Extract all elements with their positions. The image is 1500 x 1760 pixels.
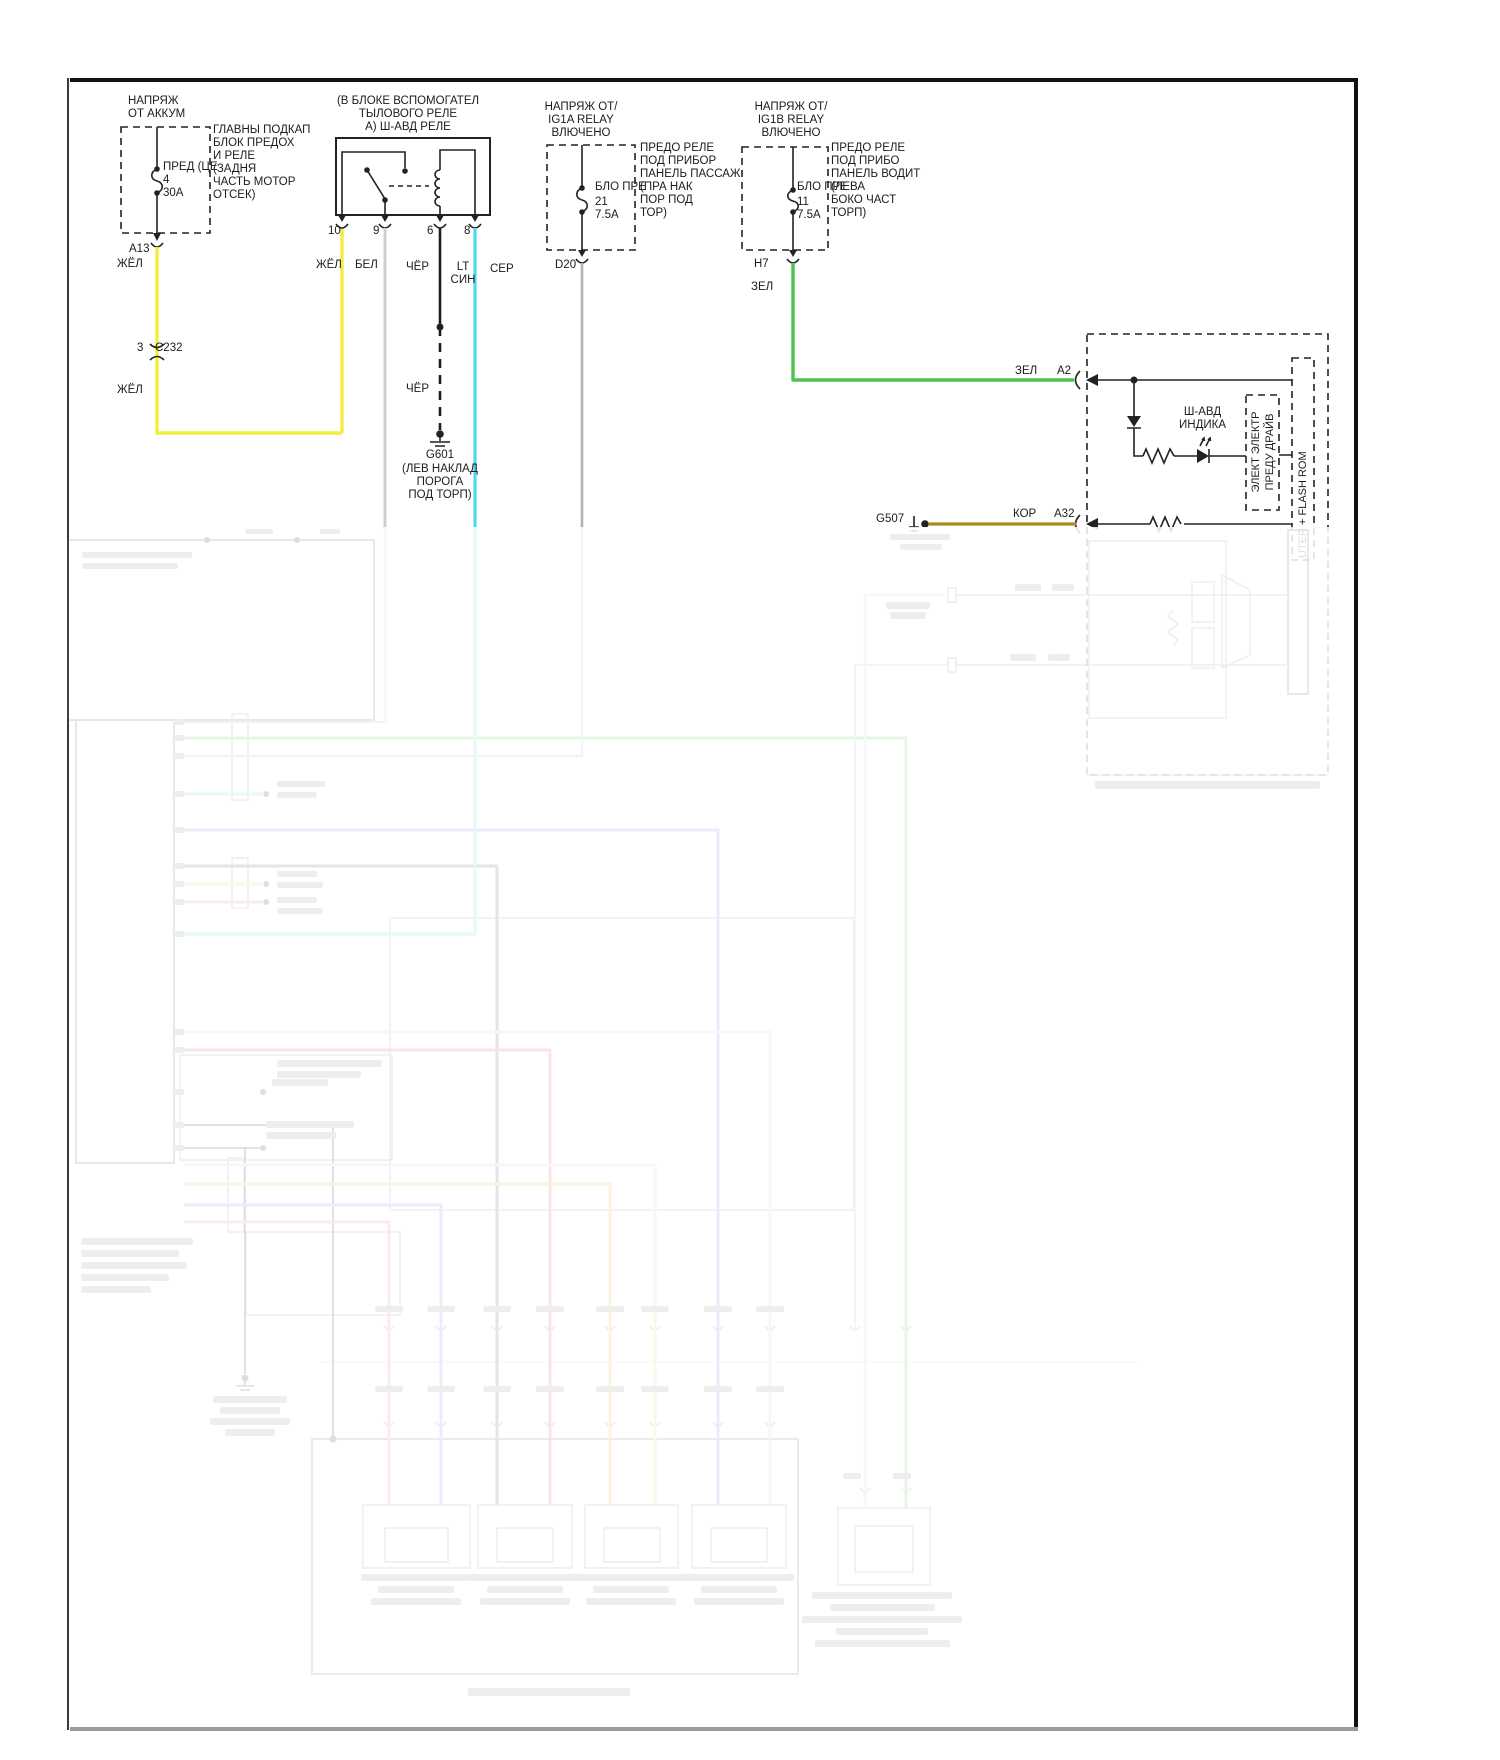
battery-box-label: ГЛАВНЫ ПОДКАП БЛОК ПРЕДОХ И РЕЛЕ (ЗАДНЯ … [213,124,310,202]
relay-pin-9: 9 [373,225,379,238]
bottom-modules [363,1505,786,1568]
arrow-down-icon [153,233,161,241]
driver-box-label: ЭЛЕКТ ЭЛЕКТР ПРЕДУ ДРАЙВ [1249,396,1277,508]
diode-icon [1127,380,1143,456]
ground-g507: G507 [876,513,904,526]
relay-pin-8: 8 [464,225,470,238]
ig1a-fuse-name: БЛО ПРЕ [595,181,646,194]
pin-a13: A13 [129,243,149,256]
wire-label-bel: БЕЛ [355,259,378,272]
resistor-icon-2 [1150,517,1181,531]
ig1a-fuse-box [547,145,635,263]
fuse-icon [152,169,163,193]
relay-pin-6: 6 [427,225,433,238]
wire-label-zel-1: ЗЕЛ [751,281,773,294]
wire-label-zel-2: ЗЕЛ [1015,365,1037,378]
wire-gray-right [855,665,948,1330]
wire-label-ser: СЕР [490,263,514,276]
wire-ltblue-pin8 [184,228,475,934]
pin-a32: A32 [1054,508,1074,521]
resistor-icon [1143,449,1174,463]
wire-lightgray-2 [184,1165,655,1302]
relay-coil-icon [435,150,475,215]
ig1a-fuse-amps: 21 7.5A [595,196,619,222]
wire-label-kor: КОР [1013,508,1036,521]
faded-structure [68,530,1328,1674]
battery-header: НАПРЯЖ ОТ АККУМ [128,95,185,121]
connector-arc-a13 [151,243,163,247]
connector-arc-d20 [576,259,588,263]
pin-h7: H7 [754,258,769,271]
relay-pin-10: 10 [328,225,341,238]
splice-pin-3: 3 [137,342,143,355]
connector-arc-a2 [1076,371,1081,389]
wire-red-main [184,1050,550,1505]
module-pins [174,719,184,1151]
wire-label-cher: ЧЁР [406,261,429,274]
led-indicator-icon [1197,438,1211,463]
connector-arc-a32 [1076,515,1081,533]
fuse-icon [577,188,588,212]
wire-label-zhel: ЖЁЛ [316,259,342,272]
ig1b-header: НАПРЯЖ ОТ/ IG1B RELAY ВЛЮЧЕНО [745,101,837,140]
ground-g601: G601 [410,449,470,462]
wire-gray-d20 [184,263,582,756]
wire-label-ltsin: LT СИН [447,261,479,287]
ig1b-fuse-amps: 11 7.5A [797,196,821,222]
connector-arc-h7 [787,259,799,263]
relay-box [336,138,490,228]
relay-title: (В БЛОКЕ ВСПОМОГАТЕЛ ТЫЛОВОГО РЕЛЕ А) Ш-… [323,95,493,134]
splice-c232: C232 [155,342,183,355]
ig1b-side-label: ПРЕДО РЕЛЕ ПОД ПРИБО ПАНЕЛЬ ВОДИТ (ЛЕВА … [831,142,920,220]
ig1a-side-label: ПРЕДО РЕЛЕ ПОД ПРИБОР ПАНЕЛЬ ПАССАЖ (ПРА… [640,142,741,220]
ground-symbol-g601 [430,430,450,446]
wire-pink [184,1222,389,1505]
wire-violet-1 [184,830,718,1505]
ig1a-header: НАПРЯЖ ОТ/ IG1A RELAY ВЛЮЧЕНО [535,101,627,140]
pin-d20: D20 [555,259,576,272]
wire-label-yellow-2: ЖЁЛ [117,384,143,397]
wire-label-yellow-1: ЖЁЛ [117,258,143,271]
indicator-label: Ш-АВД ИНДИКА [1165,406,1240,432]
pin-a2: A2 [1057,365,1071,378]
page-border [67,78,1358,1731]
g507-ground [909,516,929,531]
wire-yellow-a13 [157,228,342,433]
rom-box-label: UTER + FLASH ROM [1296,422,1310,558]
faded-wires [184,595,948,1508]
relay-pin-connectors [336,215,481,228]
battery-fuse-label: ПРЕД (ЦЕ 4 30A [163,161,218,200]
wiring-diagram-page: НАПРЯЖ ОТ АККУМ ПРЕД (ЦЕ 4 30A ГЛАВНЫ ПО… [0,0,1500,1760]
ground-g601-label: (ЛЕВ НАКЛАД ПОРОГА ПОД ТОРП) [395,463,485,502]
wire-label-cher-2: ЧЁР [406,383,429,396]
wiring-svg [0,0,1500,1760]
ground-symbol-lower [236,1375,254,1391]
wire-green-h7 [793,263,1074,380]
abs-module-box [1076,334,1329,775]
